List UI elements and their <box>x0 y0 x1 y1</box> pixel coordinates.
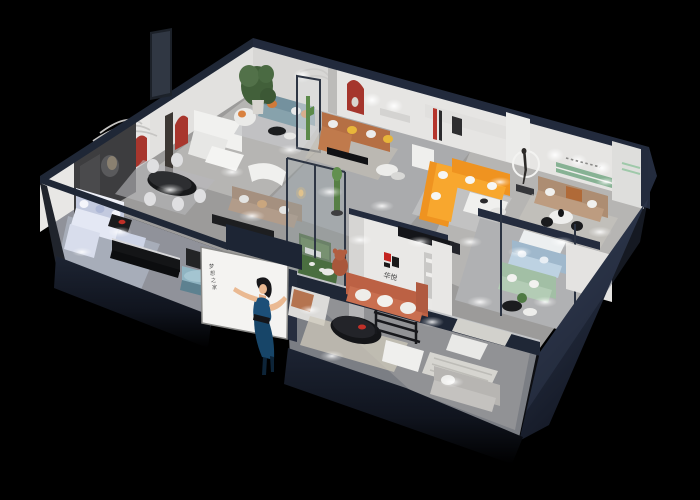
svg-text:梦: 梦 <box>209 264 214 270</box>
svg-text:之: 之 <box>211 277 216 284</box>
svg-text:家: 家 <box>212 284 217 291</box>
svg-text:想: 想 <box>210 270 215 277</box>
